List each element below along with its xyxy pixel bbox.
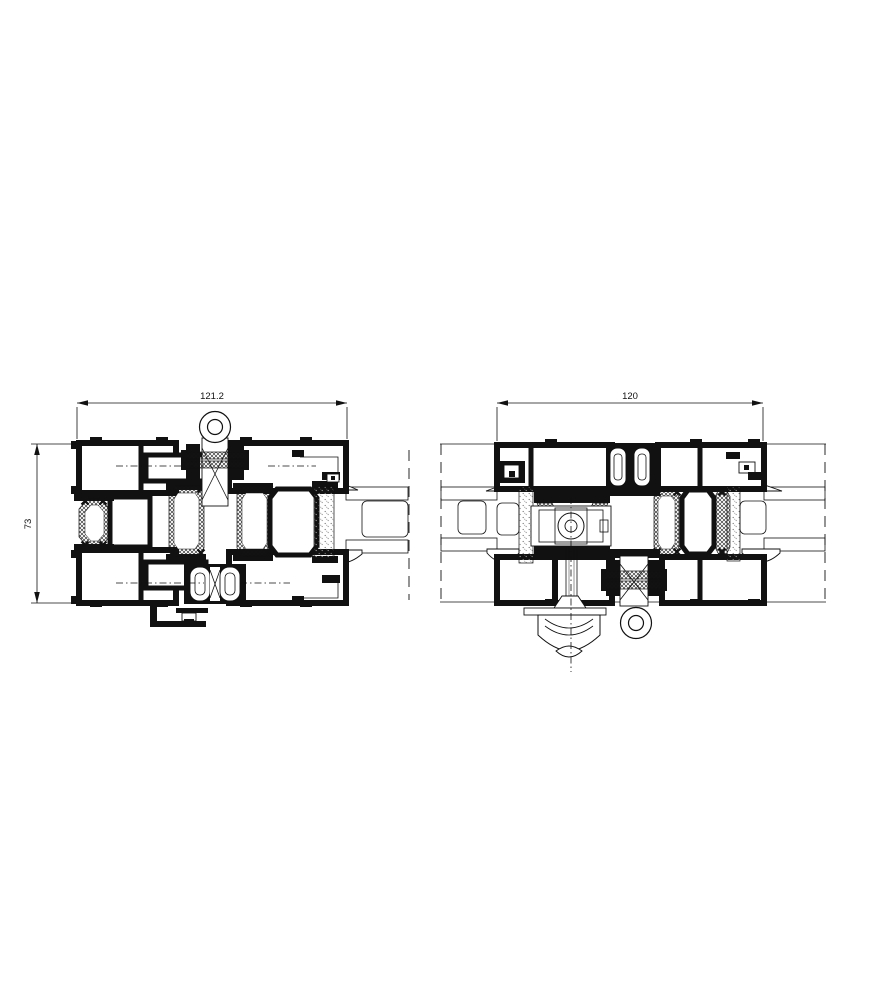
right-width-label: 120 xyxy=(622,391,638,402)
right-width-dimension: 120 xyxy=(497,391,763,441)
foam-insulation-strip xyxy=(314,486,334,558)
right-section-drawing xyxy=(440,439,826,672)
hinge-pin-circle xyxy=(208,420,223,435)
hinge-bolt xyxy=(604,581,664,589)
foam-insulation-strip xyxy=(727,487,740,561)
hinge-bolt xyxy=(184,461,246,468)
hinge-bolt xyxy=(184,452,246,459)
left-section-drawing xyxy=(71,412,409,628)
hinge-bolt xyxy=(604,571,664,579)
left-height-dimension: 73 xyxy=(23,444,76,603)
profile-section-drawing: 121.2 73 120 xyxy=(0,0,875,1000)
left-bottom-seal-assembly xyxy=(184,564,246,604)
interlock-brush-seals xyxy=(606,443,658,491)
drawing-canvas: 121.2 73 120 xyxy=(0,0,875,1000)
left-width-label: 121.2 xyxy=(200,391,224,402)
hinge-pin-circle xyxy=(629,616,644,631)
left-height-label: 73 xyxy=(23,519,34,530)
